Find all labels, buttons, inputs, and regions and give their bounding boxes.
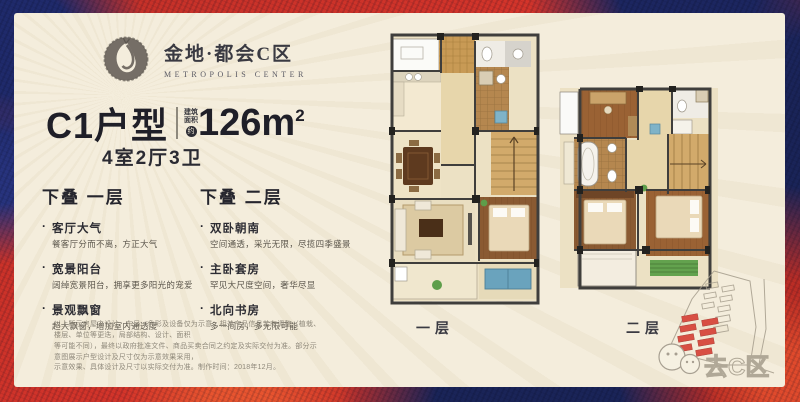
disclaimer-line: 示意效果、具体设计及尺寸以实际交付为准。制作时间：2018年12月。	[54, 363, 322, 374]
watermark-text: 去C区	[704, 354, 769, 381]
feature-section-level1: 下叠 一层 客厅大气 餐客厅分而不离，方正大气 宽景阳台 阔绰宽景阳台，拥享更多…	[42, 183, 202, 343]
level1-rooms	[391, 35, 539, 301]
feature-item-title: 主卧套房	[210, 261, 360, 277]
area-qualifier: 建筑 面积 约	[184, 109, 198, 137]
floorplan-level1	[375, 27, 545, 319]
feature-item-desc: 阔绰宽景阳台，拥享更多阳光的宠爱	[52, 279, 202, 291]
feature-item-desc: 餐客厅分而不离，方正大气	[52, 238, 202, 250]
unit-area: 126m2	[198, 102, 305, 145]
area-label-top: 建筑	[184, 109, 198, 117]
disclaimer-line: 以上所示房屋之设计、布局、色彩及设备仅为示意，相关产品信息若有调整（植栽、楼层、…	[54, 320, 322, 342]
flyer-panel: 金地·都会C区 METROPOLIS CENTER C1户型 建筑 面积 约 1…	[14, 13, 785, 387]
feature-section-title: 下叠 一层	[42, 183, 202, 208]
feature-item-title: 宽景阳台	[52, 261, 202, 277]
feature-item: 宽景阳台 阔绰宽景阳台，拥享更多阳光的宠爱	[42, 261, 202, 291]
feature-item: 双卧朝南 空间通透，采光无限，尽揽四季盛景	[200, 220, 360, 250]
disclaimer: 以上所示房屋之设计、布局、色彩及设备仅为示意，相关产品信息若有调整（植栽、楼层、…	[54, 320, 322, 374]
area-superscript: 2	[295, 106, 304, 125]
brand-subtitle: METROPOLIS CENTER	[164, 70, 307, 79]
sitemap-watermark: 去C区	[654, 269, 789, 387]
brand-logo-icon	[100, 33, 152, 85]
feature-item-desc: 罕见大尺度空间，奢华尽显	[210, 279, 360, 291]
feature-item-title: 客厅大气	[52, 220, 202, 236]
feature-item: 客厅大气 餐客厅分而不离，方正大气	[42, 220, 202, 250]
unit-model: C1户型	[46, 97, 168, 149]
feature-item-desc: 空间通透，采光无限，尽揽四季盛景	[210, 238, 360, 250]
wechat-icon	[659, 344, 700, 374]
feature-item: 主卧套房 罕见大尺度空间，奢华尽显	[200, 261, 360, 291]
feature-item-title: 双卧朝南	[210, 220, 360, 236]
sitemap-buildings	[676, 282, 735, 356]
plan-label-level1: 一层	[390, 318, 480, 338]
feature-item-title: 景观飘窗	[52, 302, 202, 318]
approx-badge: 约	[186, 126, 197, 137]
disclaimer-line: 等可能不同），最终以政府批准文件、商品买卖合同之约定及实际交付为准。部分示意图展…	[54, 342, 322, 364]
area-label-bottom: 面积	[184, 117, 198, 125]
feature-section-title: 下叠 二层	[200, 183, 360, 208]
brand-text: 金地·都会C区 METROPOLIS CENTER	[164, 39, 307, 79]
area-value: 126m	[198, 102, 295, 144]
brand-name: 金地·都会C区	[164, 39, 307, 66]
feature-section-level2: 下叠 二层 双卧朝南 空间通透，采光无限，尽揽四季盛景 主卧套房 罕见大尺度空间…	[200, 183, 360, 343]
headline: C1户型 建筑 面积 约 126m2	[46, 97, 305, 149]
feature-item-title: 北向书房	[210, 302, 360, 318]
headline-divider	[176, 107, 178, 139]
flyer: 金地·都会C区 METROPOLIS CENTER C1户型 建筑 面积 约 1…	[0, 0, 800, 402]
room-layout: 4室2厅3卫	[102, 143, 203, 170]
brand-block: 金地·都会C区 METROPOLIS CENTER	[100, 33, 307, 85]
